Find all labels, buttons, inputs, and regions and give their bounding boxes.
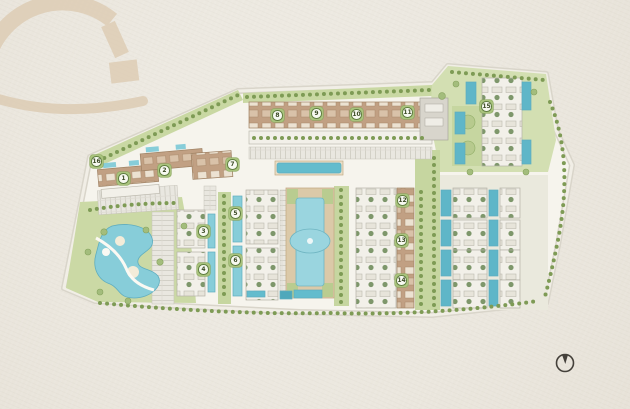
block-badge-6: 6 <box>229 254 242 267</box>
block-badge-3: 3 <box>197 225 210 238</box>
block-badge-16: 16 <box>90 155 103 168</box>
block-badge-14: 14 <box>395 274 408 287</box>
central-courtyard-pool <box>286 188 334 298</box>
block-badge-5: 5 <box>229 207 242 220</box>
masterplan-canvas: 1 2 3 4 5 6 7 8 9 10 11 12 13 14 15 16 <box>0 0 630 409</box>
block-badge-7: 7 <box>226 158 239 171</box>
site-plan-map <box>0 0 630 409</box>
block-badge-11: 11 <box>401 106 414 119</box>
block-badge-10: 10 <box>350 108 363 121</box>
block-badge-1: 1 <box>117 172 130 185</box>
block-badge-15: 15 <box>480 100 493 113</box>
block-badge-13: 13 <box>395 234 408 247</box>
block-badge-2: 2 <box>158 164 171 177</box>
logo-watermark-icon <box>0 2 143 109</box>
block-badge-12: 12 <box>396 194 409 207</box>
north-arrow-icon <box>557 355 574 372</box>
block-badge-4: 4 <box>197 263 210 276</box>
block-badge-8: 8 <box>271 109 284 122</box>
block-badge-9: 9 <box>310 107 323 120</box>
